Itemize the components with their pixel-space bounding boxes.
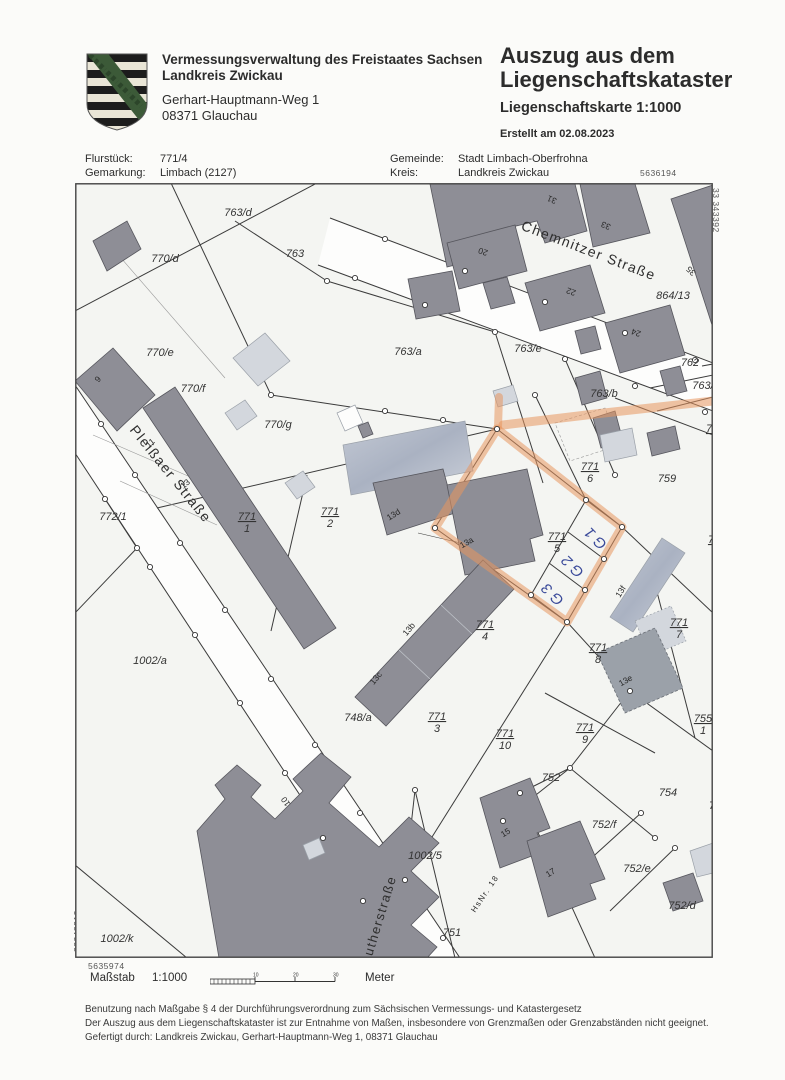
- parcel-number-label: 752/f: [592, 819, 617, 831]
- document-subtitle: Liegenschaftskarte 1:1000: [500, 100, 681, 116]
- parcel-number-label: 752/d: [668, 900, 696, 912]
- boundary-point: [222, 607, 227, 612]
- parcel-fraction-numerator: 771: [321, 506, 339, 518]
- flurstueck-label: Flurstück:: [85, 153, 133, 165]
- boundary-point: [517, 790, 522, 795]
- parcel-fraction-denominator: 7: [676, 629, 683, 641]
- boundary-point: [500, 818, 505, 823]
- boundary-point: [567, 765, 572, 770]
- parcel-fraction-numerator: 771: [581, 461, 599, 473]
- parcel-fraction-denominator: 10: [499, 740, 512, 752]
- kreis-value: Landkreis Zwickau: [458, 167, 549, 179]
- boundary-point: [612, 472, 617, 477]
- parcel-number-label: 864/13: [656, 290, 691, 302]
- boundary-point: [237, 700, 242, 705]
- coordinate-top-right: 5636194: [640, 168, 677, 178]
- parcel-fraction-numerator: 771: [548, 531, 566, 543]
- boundary-point: [440, 417, 445, 422]
- saxony-coat-of-arms-icon: [85, 52, 149, 132]
- boundary-point: [494, 426, 499, 431]
- svg-text:10: 10: [253, 973, 259, 979]
- parcel-fraction-numerator: 771: [428, 711, 446, 723]
- parcel-number-label: 751: [443, 927, 461, 939]
- parcel-number-label: 1002/a: [133, 655, 167, 667]
- parcel-fraction-denominator: 5: [554, 543, 561, 555]
- scale-label: Maßstab: [90, 972, 135, 984]
- boundary-point: [357, 810, 362, 815]
- boundary-point: [462, 268, 467, 273]
- boundary-point: [382, 408, 387, 413]
- parcel-fraction-denominator: 1: [244, 523, 250, 535]
- gemeinde-label: Gemeinde:: [390, 153, 444, 165]
- boundary-point: [528, 592, 533, 597]
- boundary-point: [268, 392, 273, 397]
- boundary-point: [562, 356, 567, 361]
- boundary-point: [98, 421, 103, 426]
- address-line2: 08371 Glauchau: [162, 108, 257, 123]
- boundary-point: [192, 632, 197, 637]
- address-line1: Gerhart-Hauptmann-Weg 1: [162, 92, 319, 107]
- org-line2: Landkreis Zwickau: [162, 68, 283, 83]
- parcel-number-label: 772/1: [99, 511, 127, 523]
- parcel-fraction-denominator: 2: [326, 518, 333, 530]
- boundary-point: [312, 742, 317, 747]
- authority-address: Gerhart-Hauptmann-Weg 108371 Glauchau: [162, 92, 319, 124]
- parcel-number-label: 763: [286, 248, 305, 260]
- boundary-point: [492, 329, 497, 334]
- parcel-fraction-numerator: 755: [694, 713, 713, 725]
- boundary-point: [360, 898, 365, 903]
- footer-note-3: Gefertigt durch: Landkreis Zwickau, Gerh…: [85, 1032, 438, 1043]
- scale-unit: Meter: [365, 972, 394, 984]
- boundary-point: [627, 688, 632, 693]
- boundary-point: [324, 278, 329, 283]
- parcel-number-label: 762: [681, 357, 699, 369]
- boundary-point: [582, 587, 587, 592]
- boundary-point: [412, 787, 417, 792]
- parcel-number-label: 1002/5: [408, 850, 443, 862]
- boundary-point: [102, 496, 107, 501]
- boundary-point: [134, 545, 139, 550]
- parcel-fraction-numerator: 771: [496, 728, 514, 740]
- boundary-point: [402, 877, 407, 882]
- boundary-point: [268, 676, 273, 681]
- boundary-point: [564, 619, 569, 624]
- parcel-number-label: 763/a: [394, 346, 422, 358]
- parcel-number-label: 763/d: [224, 207, 252, 219]
- parcel-number-label: 763/b: [590, 388, 618, 400]
- parcel-number-label: 770/g: [264, 419, 292, 431]
- parcel-number-label: 748/a: [344, 712, 372, 724]
- footer-note-1: Benutzung nach Maßgabe § 4 der Durchführ…: [85, 1004, 582, 1015]
- parcel-number-label: 752: [542, 772, 560, 784]
- cadastral-extract-page: Vermessungsverwaltung des Freistaates Sa…: [0, 0, 785, 1080]
- boundary-point: [702, 409, 707, 414]
- boundary-point: [583, 497, 588, 502]
- footer-note-2: Der Auszug aus dem Liegenschaftskataster…: [85, 1018, 709, 1029]
- parcel-fraction-denominator: 1: [700, 725, 706, 737]
- parcel-fraction-numerator: 771: [589, 642, 607, 654]
- coordinate-bottom-left: 5635974: [88, 961, 125, 971]
- boundary-point: [132, 472, 137, 477]
- svg-text:20: 20: [293, 973, 299, 979]
- boundary-point: [601, 556, 606, 561]
- parcel-fraction-numerator: 771: [576, 722, 594, 734]
- parcel-number-label: 1002/k: [100, 933, 134, 945]
- parcel-number-label: 753: [709, 800, 718, 812]
- parcel-fraction-denominator: 4: [482, 631, 488, 643]
- boundary-point: [147, 564, 152, 569]
- boundary-point: [177, 540, 182, 545]
- parcel-number-label: 770/f: [181, 383, 206, 395]
- parcel-number-label: 763/: [692, 380, 714, 392]
- parcel-fraction-denominator: 8: [595, 654, 602, 666]
- parcel-fraction-denominator: 9: [582, 734, 588, 746]
- parcel-number-label: 754: [659, 787, 677, 799]
- boundary-point: [622, 330, 627, 335]
- boundary-point: [542, 299, 547, 304]
- parcel-number-label: 752/e: [623, 863, 651, 875]
- parcel-fraction-numerator: 771: [238, 511, 256, 523]
- boundary-point: [352, 275, 357, 280]
- scale-value: 1:1000: [152, 972, 187, 984]
- parcel-number-label: 763/e: [514, 343, 542, 355]
- boundary-point: [432, 525, 437, 530]
- svg-text:30: 30: [333, 973, 339, 979]
- boundary-point: [632, 383, 637, 388]
- parcel-number-label: 770/e: [146, 347, 174, 359]
- parcel-fraction-denominator: 6: [587, 473, 594, 485]
- gemeinde-value: Stadt Limbach-Oberfrohna: [458, 153, 588, 165]
- parcel-fraction-numerator: 7: [708, 534, 715, 546]
- boundary-point: [422, 302, 427, 307]
- scale-bar: 10 20 30: [210, 972, 340, 988]
- boundary-point: [672, 845, 677, 850]
- kreis-label: Kreis:: [390, 167, 418, 179]
- boundary-point: [532, 392, 537, 397]
- boundary-point: [320, 835, 325, 840]
- creation-date: Erstellt am 02.08.2023: [500, 128, 614, 140]
- flurstueck-value: 771/4: [160, 153, 188, 165]
- issuing-authority: Vermessungsverwaltung des Freistaates Sa…: [162, 52, 482, 84]
- boundary-point: [382, 236, 387, 241]
- boundary-point: [652, 835, 657, 840]
- parcel-number-label: 759: [658, 473, 676, 485]
- org-line1: Vermessungsverwaltung des Freistaates Sa…: [162, 52, 482, 67]
- boundary-point: [282, 770, 287, 775]
- parcel-fraction-numerator: 771: [476, 619, 494, 631]
- document-title: Auszug aus demLiegenschaftskataster: [500, 44, 732, 92]
- cadastral-map[interactable]: Chemnitzer StraßePleißaer StraßeLutherst…: [75, 183, 718, 958]
- gemarkung-label: Gemarkung:: [85, 167, 146, 179]
- parcel-number-label: 770/d: [151, 253, 179, 265]
- gemarkung-value: Limbach (2127): [160, 167, 236, 179]
- parcel-fraction-numerator: 771: [670, 617, 688, 629]
- boundary-point: [619, 524, 624, 529]
- parcel-fraction-denominator: 3: [434, 723, 441, 735]
- boundary-point: [638, 810, 643, 815]
